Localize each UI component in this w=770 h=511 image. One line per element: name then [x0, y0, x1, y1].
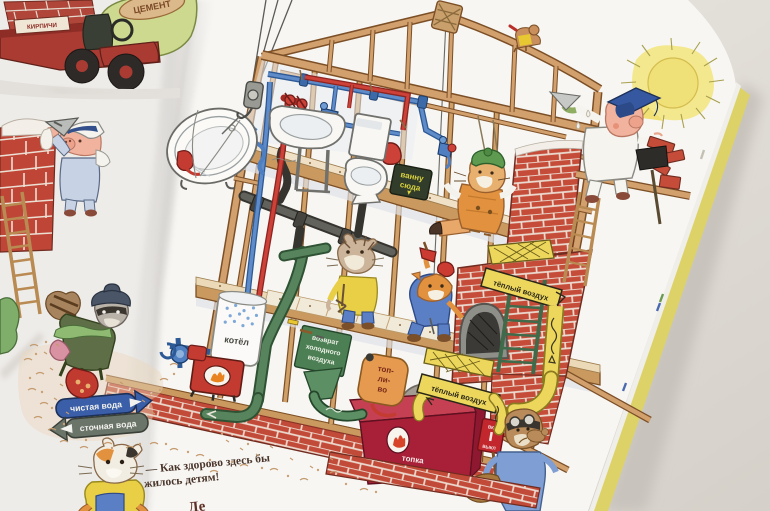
svg-text:Де: Де	[187, 498, 206, 511]
svg-text:во: во	[377, 384, 388, 395]
